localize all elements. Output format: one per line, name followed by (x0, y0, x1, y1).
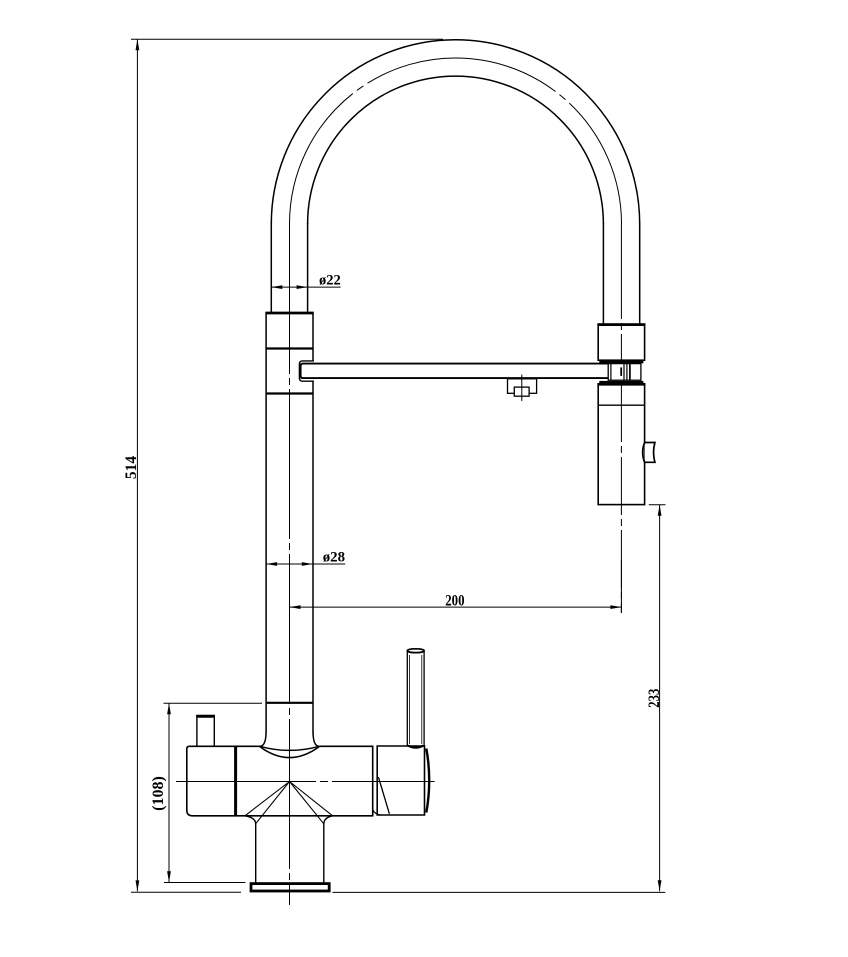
svg-text:(108): (108) (150, 776, 167, 811)
svg-text:233: 233 (646, 689, 663, 708)
svg-text:ø28: ø28 (323, 550, 345, 566)
svg-text:514: 514 (123, 456, 140, 479)
svg-text:200: 200 (445, 593, 464, 610)
svg-text:ø22: ø22 (319, 272, 341, 288)
